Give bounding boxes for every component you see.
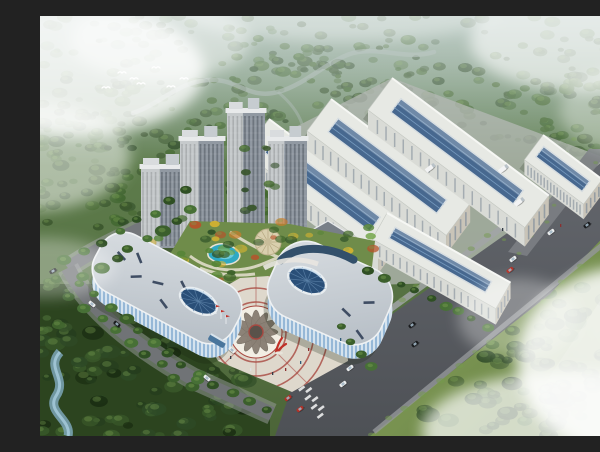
aerial-rendering: Bird's-eye architectural rendering of a … bbox=[40, 16, 600, 436]
rendering-canvas bbox=[40, 16, 600, 436]
